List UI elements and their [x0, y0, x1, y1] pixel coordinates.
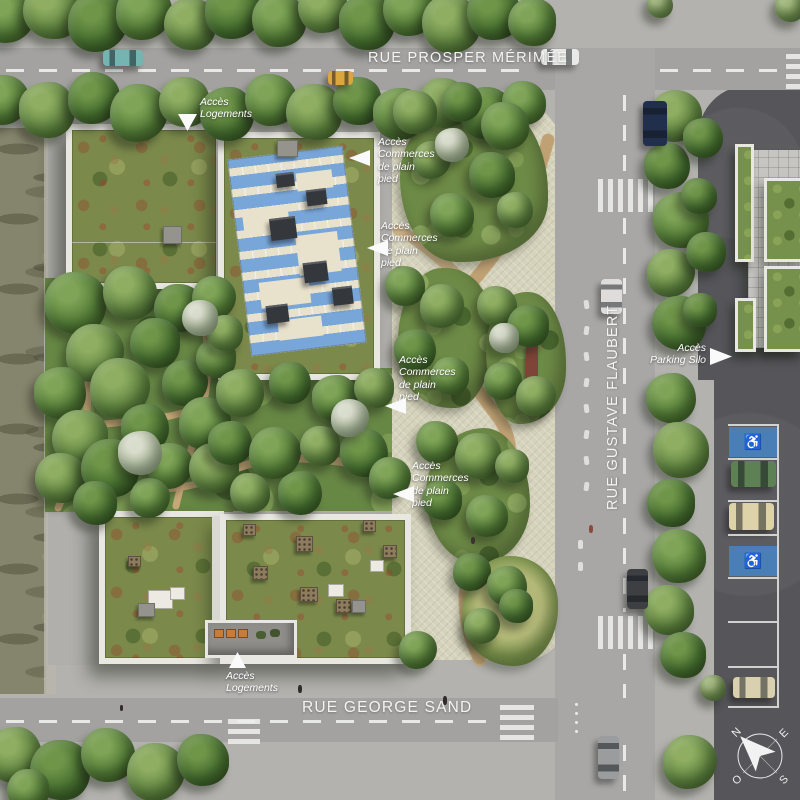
- tree-canopy: [339, 0, 395, 50]
- tree-canopy: [68, 0, 128, 52]
- tree-canopy: [30, 740, 90, 800]
- terrace-table: [226, 629, 236, 638]
- annotation-line: pied: [381, 257, 438, 269]
- annotation-line: Accès: [399, 354, 456, 366]
- center-line: [6, 69, 521, 72]
- annotation-line: pied: [378, 173, 435, 185]
- compass-west-label: O: [730, 772, 745, 787]
- meadow-island: [462, 556, 558, 666]
- silo-green-roof: [764, 266, 800, 352]
- annotation-acces-commerces-2: Accès Commerces de plain pied: [368, 220, 438, 270]
- annotation-line: Accès: [226, 670, 278, 682]
- annotation-acces-commerces-1: Accès Commerces de plain pied: [352, 136, 435, 186]
- handicap-parking-spot: ♿: [729, 546, 777, 576]
- annotation-line: Accès: [200, 96, 252, 108]
- annotation-line: Accès: [378, 136, 435, 148]
- arrow-left-icon: [349, 150, 370, 166]
- annotation-line: de plain: [412, 485, 469, 497]
- compass-rose: N E S O: [722, 718, 798, 794]
- street-label-rue-gustave-flaubert: RUE GUSTAVE FLAUBERT: [605, 310, 621, 510]
- annotation-acces-logements-bottom: Accès Logements: [226, 652, 278, 695]
- courtyard-garden: [95, 368, 395, 511]
- arrow-left-icon: [393, 486, 414, 502]
- silo-planter: [735, 298, 756, 352]
- annotation-line: pied: [412, 497, 469, 509]
- terrace-planter: [270, 629, 280, 637]
- rooftop-equipment: [269, 216, 297, 241]
- annotation-line: pied: [399, 391, 456, 403]
- annotation-acces-logements-top: Accès Logements: [176, 96, 252, 121]
- tree-canopy: [663, 735, 717, 789]
- tree-canopy: [775, 0, 800, 22]
- annotation-line: de plain: [381, 245, 438, 257]
- crosswalk: [598, 179, 655, 212]
- annotation-line: de plain: [399, 379, 456, 391]
- annotation-line: de plain: [378, 161, 435, 173]
- center-line: [623, 745, 626, 797]
- compass-south-label: S: [777, 773, 791, 787]
- tree-canopy: [116, 0, 172, 40]
- tree-canopy: [23, 0, 81, 39]
- wheelchair-icon: ♿: [744, 552, 763, 570]
- tree-canopy: [127, 743, 185, 800]
- crosswalk: [228, 715, 260, 744]
- rooftop-equipment: [332, 286, 354, 306]
- annotation-acces-commerces-4: Accès Commerces de plain pied: [394, 460, 469, 510]
- tree-canopy: [422, 0, 480, 53]
- tree-canopy: [0, 0, 35, 43]
- tree-canopy: [652, 529, 706, 583]
- street-detail: [298, 685, 302, 693]
- crosswalk: [598, 616, 655, 649]
- rooftop-equipment: [306, 188, 328, 206]
- annotation-line: Logements: [200, 108, 252, 120]
- building-a-green-roof: [66, 124, 222, 289]
- roof-joint: [72, 242, 216, 243]
- tree-canopy: [647, 0, 673, 18]
- tree-canopy: [467, 0, 521, 40]
- terrace-table: [214, 629, 224, 638]
- street-label-rue-prosper-merimee: RUE PROSPER MÉRIMÉE: [368, 50, 568, 66]
- annotation-line: Commerces: [412, 472, 469, 484]
- annotation-line: Accès: [381, 220, 438, 232]
- silo-planter: [735, 144, 754, 262]
- crosswalk: [500, 703, 534, 740]
- tree-canopy: [660, 632, 706, 678]
- site-plan: ♿ ♿: [0, 0, 800, 800]
- street-label-rue-george-sand: RUE GEORGE SAND: [302, 699, 472, 717]
- annotation-acces-parking-silo: Accès Parking Silo: [640, 342, 706, 367]
- wheelchair-icon: ♿: [744, 433, 763, 451]
- silo-green-roof: [764, 178, 800, 262]
- arrow-up-icon: [229, 652, 246, 668]
- center-line: [623, 218, 626, 612]
- annotation-line: Accès: [412, 460, 469, 472]
- center-line: [660, 69, 786, 72]
- annotation-line: Parking Silo: [640, 354, 706, 366]
- center-line: [623, 95, 626, 175]
- rooftop-equipment: [303, 260, 329, 283]
- terrace-planter: [256, 631, 266, 639]
- annotation-line: Accès: [640, 342, 706, 354]
- rooftop-equipment: [265, 304, 289, 325]
- handicap-parking-spot: ♿: [729, 427, 777, 457]
- tree-canopy: [383, 0, 435, 36]
- rooftop-equipment: [275, 172, 295, 188]
- tree-canopy: [164, 0, 216, 50]
- arrow-left-icon: [367, 240, 388, 256]
- tree-canopy: [298, 0, 348, 33]
- annotation-line: Logements: [226, 682, 278, 694]
- tree-canopy: [7, 769, 49, 800]
- crosswalk: [786, 49, 800, 89]
- tree-canopy: [508, 0, 556, 46]
- tree-canopy: [252, 0, 306, 47]
- annotation-line: Commerces: [399, 366, 456, 378]
- solar-panel-array: [227, 146, 366, 357]
- terrace-table: [238, 629, 248, 638]
- tree-canopy: [653, 422, 709, 478]
- rough-field: [0, 128, 46, 694]
- tree-canopy: [205, 0, 263, 39]
- roof-walkway: [296, 169, 334, 191]
- center-line: [623, 654, 626, 698]
- annotation-acces-commerces-3: Accès Commerces de plain pied: [386, 354, 456, 404]
- compass-east-label: E: [777, 727, 791, 741]
- annotation-line: Commerces: [378, 148, 435, 160]
- bench: [526, 344, 538, 390]
- annotation-line: Commerces: [381, 232, 438, 244]
- tree-canopy: [650, 90, 702, 142]
